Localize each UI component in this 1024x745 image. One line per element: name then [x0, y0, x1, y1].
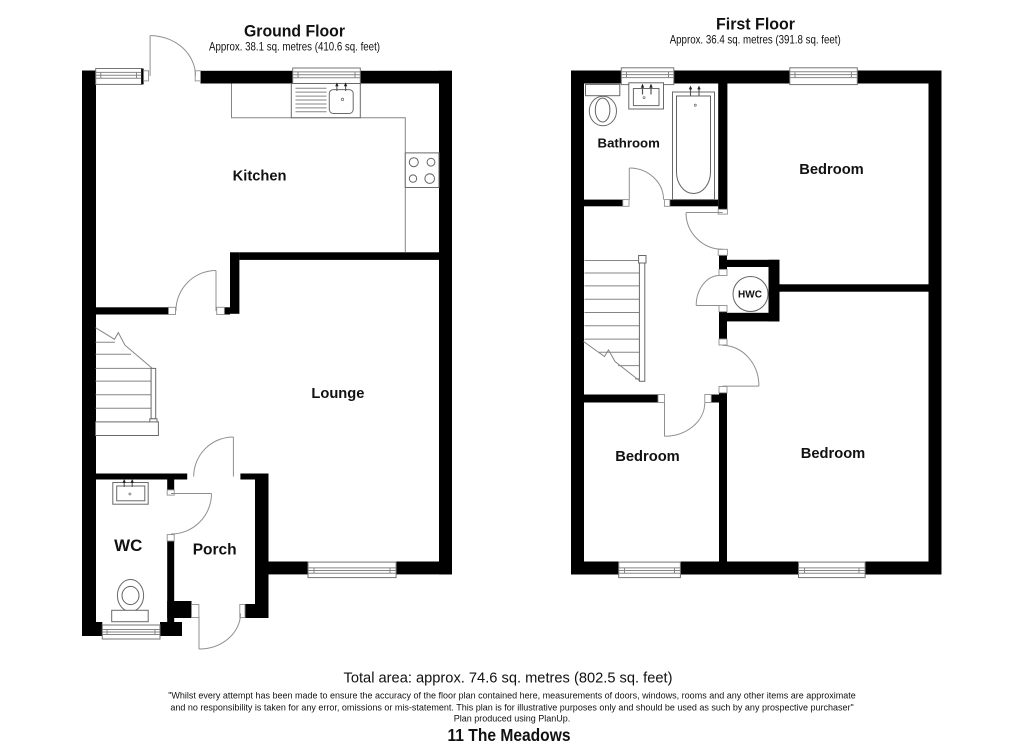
svg-text:Plan produced using PlanUp.: Plan produced using PlanUp. [454, 713, 571, 723]
svg-text:Total area: approx. 74.6 sq. m: Total area: approx. 74.6 sq. metres (802… [344, 670, 673, 687]
svg-text:11 The Meadows: 11 The Meadows [448, 725, 571, 745]
svg-text:HWC: HWC [738, 290, 762, 301]
svg-text:First Floor: First Floor [716, 15, 795, 34]
svg-text:Porch: Porch [193, 542, 237, 559]
svg-text:"Whilst every attempt has been: "Whilst every attempt has been made to e… [168, 690, 856, 700]
svg-text:Bedroom: Bedroom [801, 446, 865, 462]
svg-text:Bedroom: Bedroom [615, 449, 679, 465]
svg-text:WC: WC [114, 536, 142, 555]
svg-text:Approx. 38.1 sq. metres (410.6: Approx. 38.1 sq. metres (410.6 sq. feet) [209, 40, 380, 54]
svg-text:Ground Floor: Ground Floor [244, 21, 345, 40]
svg-text:Bedroom: Bedroom [799, 162, 863, 178]
svg-text:Kitchen: Kitchen [233, 168, 287, 184]
svg-text:and no responsibility is taken: and no responsibility is taken for any e… [170, 703, 853, 713]
svg-text:Approx. 36.4 sq. metres (391.8: Approx. 36.4 sq. metres (391.8 sq. feet) [670, 32, 841, 46]
svg-text:Lounge: Lounge [311, 386, 364, 402]
svg-text:Bathroom: Bathroom [598, 136, 660, 151]
